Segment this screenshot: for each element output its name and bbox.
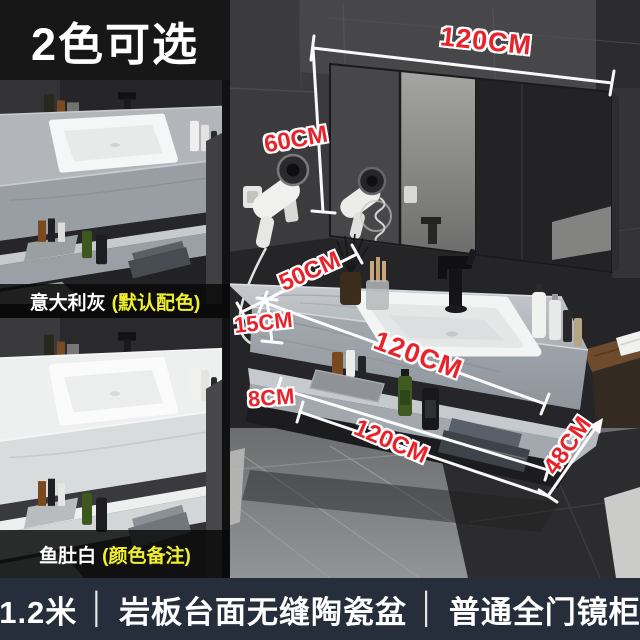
- caption-countertop: 岩板台面无缝陶瓷盆: [119, 587, 407, 632]
- variant-note: (颜色备注): [102, 541, 191, 568]
- variant-gray-graphic: [0, 80, 222, 304]
- color-options-badge: 2色可选: [0, 0, 230, 80]
- badge-label: 2色可选: [31, 8, 199, 73]
- caption-divider: │: [417, 592, 439, 626]
- variant-label-fish-belly-white: 鱼肚白 (颜色备注): [0, 530, 230, 578]
- caption-divider: │: [87, 592, 109, 626]
- variant-photo-italian-gray: [0, 80, 222, 304]
- product-caption-bar: 1.2米 │ 岩板台面无缝陶瓷盆 │ 普通全门镜柜: [0, 578, 640, 640]
- variant-name: 意大利灰: [30, 288, 106, 315]
- switch-reflection: [404, 186, 417, 203]
- mirror-cabinet: [330, 58, 619, 272]
- dimension-label-shelf-thickness: 8CM: [247, 383, 295, 412]
- variant-note: (默认配色): [112, 288, 201, 315]
- caption-mirror-cabinet: 普通全门镜柜: [449, 587, 640, 632]
- caption-size: 1.2米: [0, 587, 77, 632]
- variant-name: 鱼肚白: [39, 541, 96, 568]
- variant-column: 2色可选: [0, 0, 230, 578]
- product-promo-image: 120CM 60CM 50CM 15CM 120CM 8CM 120CM 48C…: [0, 0, 640, 640]
- variant-label-italian-gray: 意大利灰 (默认配色): [0, 284, 230, 318]
